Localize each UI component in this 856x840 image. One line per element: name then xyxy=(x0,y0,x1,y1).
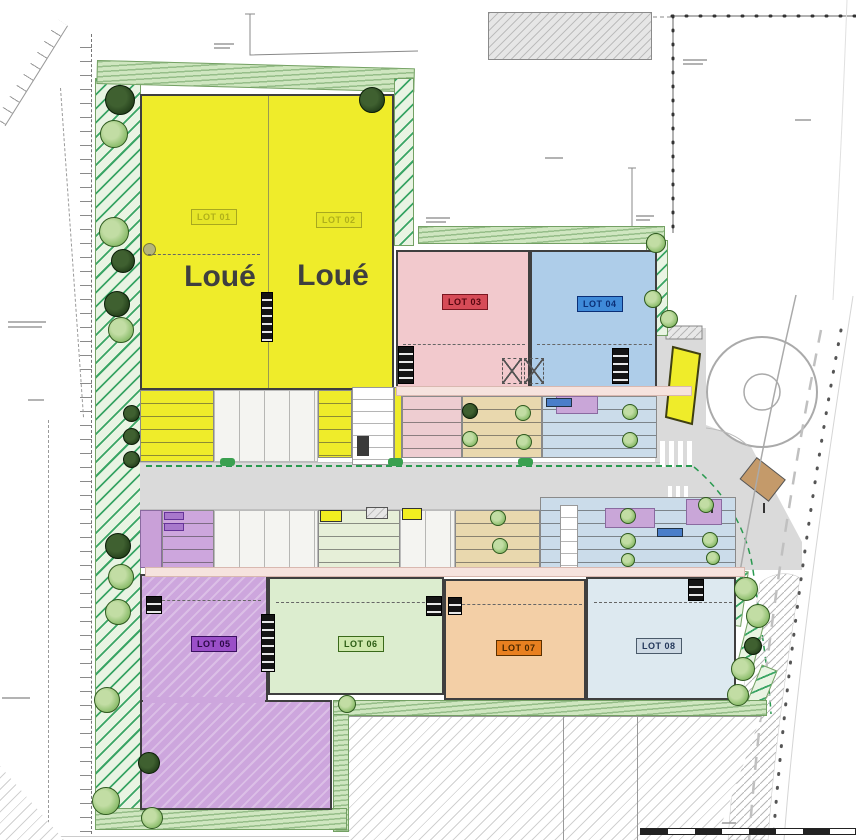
walkway-strip xyxy=(145,567,745,577)
parking-aisle xyxy=(214,390,318,462)
lot-04-tag: LOT 04 xyxy=(577,296,623,312)
stair-core xyxy=(612,348,629,384)
parking-lot02 xyxy=(318,390,352,458)
building-lot01-02 xyxy=(140,94,394,390)
step-hedge xyxy=(394,78,414,246)
site-plan: LOT 01 LOT 02 Loué Loué LOT 03 LOT 04 LO… xyxy=(0,0,856,840)
embankment-wedge xyxy=(0,20,68,126)
roundabout-island xyxy=(744,374,780,410)
parking-tag xyxy=(657,528,683,537)
north-access-road xyxy=(655,328,706,428)
access-ramp xyxy=(740,458,785,501)
future-extension-zone xyxy=(349,716,761,840)
lot-02-status: Loué xyxy=(286,259,380,293)
lot-03-tag: LOT 03 xyxy=(442,294,488,310)
lot-08-tag: LOT 08 xyxy=(636,638,682,654)
parking-lot03 xyxy=(402,396,462,458)
lot-06-tag: LOT 06 xyxy=(338,636,384,652)
north-hedge xyxy=(96,60,415,92)
roundabout xyxy=(707,337,817,447)
dimension-line xyxy=(628,168,636,232)
corner-hatch xyxy=(0,766,64,840)
reserved-bay xyxy=(763,503,765,513)
zone-division-line xyxy=(563,716,564,840)
stair-core xyxy=(688,579,704,601)
existing-building-hatched xyxy=(488,12,652,60)
south-hedge xyxy=(333,700,767,716)
west-landscape-strip xyxy=(95,78,141,818)
stair-core xyxy=(261,292,273,342)
walkway-strip xyxy=(396,386,692,396)
car-icon xyxy=(220,458,235,466)
hatched-pad xyxy=(666,326,702,339)
lot-01-tag: LOT 01 xyxy=(191,209,237,225)
reserved-bay xyxy=(402,508,422,520)
zebra-crossing xyxy=(660,441,692,502)
lot-01-status: Loué xyxy=(170,260,270,294)
parking-strip xyxy=(394,387,402,462)
party-wall xyxy=(268,96,269,388)
parking-lot01 xyxy=(140,390,214,462)
parking-aisle xyxy=(214,510,318,568)
street-lane-dashes xyxy=(749,330,821,840)
lot-07-tag: LOT 07 xyxy=(496,640,542,656)
zone-division-line xyxy=(637,716,638,840)
stair-core xyxy=(448,597,462,615)
north-hedge-east xyxy=(418,226,665,244)
parcel-dash-line xyxy=(48,420,49,838)
shaft-x-box xyxy=(524,358,544,384)
reserved-bay xyxy=(320,510,342,522)
parking-tag xyxy=(164,512,184,520)
lot-05-tag: LOT 05 xyxy=(191,636,237,652)
stair-core xyxy=(398,346,414,384)
parking-purple-patch xyxy=(605,508,655,528)
reserved-bays-column xyxy=(711,503,737,549)
parking-tan xyxy=(455,510,540,568)
parking-purple-solid xyxy=(140,510,162,568)
seam-patch xyxy=(143,697,265,703)
street-fence-dots xyxy=(773,330,841,840)
south-hedge-west xyxy=(95,808,347,830)
graphic-scale-bar xyxy=(640,828,856,835)
dimension-line xyxy=(250,14,418,55)
survey-comb-line xyxy=(80,34,92,834)
stair-core xyxy=(426,596,442,616)
car-icon xyxy=(388,458,403,466)
hatched-bay xyxy=(366,507,388,519)
covered-walkway xyxy=(560,505,578,569)
reserved-bays-column xyxy=(763,503,789,573)
service-shaft xyxy=(357,436,369,456)
car-icon xyxy=(518,458,533,466)
reserved-bay xyxy=(711,503,713,513)
stair-core xyxy=(146,596,162,614)
parking-tag xyxy=(546,398,572,407)
interior-dash xyxy=(148,254,260,255)
parking-tan xyxy=(462,396,542,458)
parking-tag xyxy=(164,523,184,531)
stair-core xyxy=(261,614,275,672)
building-lot05-lower xyxy=(140,700,332,810)
shaft-x-box xyxy=(502,358,522,384)
building-lot04 xyxy=(530,250,657,390)
lot-02-tag: LOT 02 xyxy=(316,212,362,228)
